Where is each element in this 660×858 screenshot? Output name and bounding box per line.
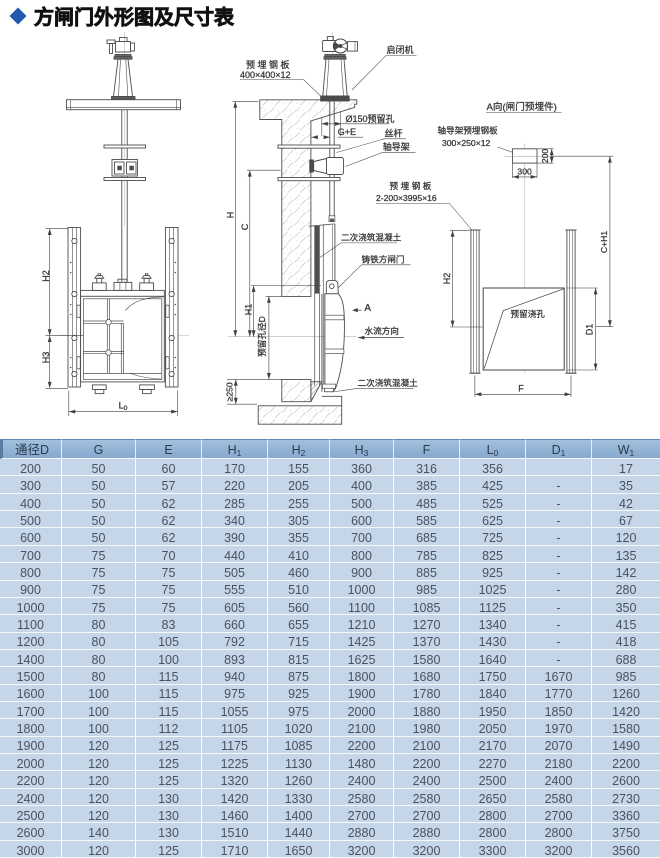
svg-text:C: C <box>240 223 250 230</box>
svg-text:轴导架: 轴导架 <box>383 141 410 152</box>
svg-text:H2: H2 <box>442 273 452 285</box>
svg-text:400×400×12: 400×400×12 <box>240 70 291 80</box>
svg-text:F: F <box>518 384 524 394</box>
svg-text:300: 300 <box>517 167 532 177</box>
svg-text:Ø150预留孔: Ø150预留孔 <box>346 113 395 124</box>
svg-text:丝杆: 丝杆 <box>385 128 403 139</box>
svg-text:铸铁方闸门: 铸铁方闸门 <box>362 254 405 265</box>
svg-text:水流方向: 水流方向 <box>365 325 399 336</box>
svg-text:二次浇筑混凝土: 二次浇筑混凝土 <box>341 232 402 243</box>
svg-text:预埋钢板: 预埋钢板 <box>246 59 292 70</box>
svg-text:D1: D1 <box>585 324 595 336</box>
svg-text:C+H1: C+H1 <box>599 231 609 253</box>
svg-text:预留浇孔: 预留浇孔 <box>511 308 546 319</box>
svg-text:2-200×3995×16: 2-200×3995×16 <box>376 193 437 203</box>
svg-text:H3: H3 <box>41 352 51 364</box>
svg-text:H2: H2 <box>41 270 51 282</box>
svg-text:300×250×12: 300×250×12 <box>442 138 490 148</box>
svg-text:预留孔径D: 预留孔径D <box>256 316 267 357</box>
svg-text:H1: H1 <box>244 304 254 316</box>
svg-text:L0: L0 <box>119 401 128 413</box>
svg-text:A向(闸门预埋件): A向(闸门预埋件) <box>487 101 557 113</box>
svg-text:启闭机: 启闭机 <box>387 44 414 55</box>
svg-text:H: H <box>226 212 236 219</box>
svg-text:G+E: G+E <box>338 127 356 137</box>
svg-text:200: 200 <box>540 149 550 164</box>
svg-text:预埋钢板: 预埋钢板 <box>390 180 434 191</box>
svg-text:轴导架预埋钢板: 轴导架预埋钢板 <box>438 125 499 136</box>
svg-text:二次浇筑混凝土: 二次浇筑混凝土 <box>358 377 419 388</box>
svg-text:≥250: ≥250 <box>224 382 234 401</box>
svg-text:A: A <box>364 303 371 314</box>
